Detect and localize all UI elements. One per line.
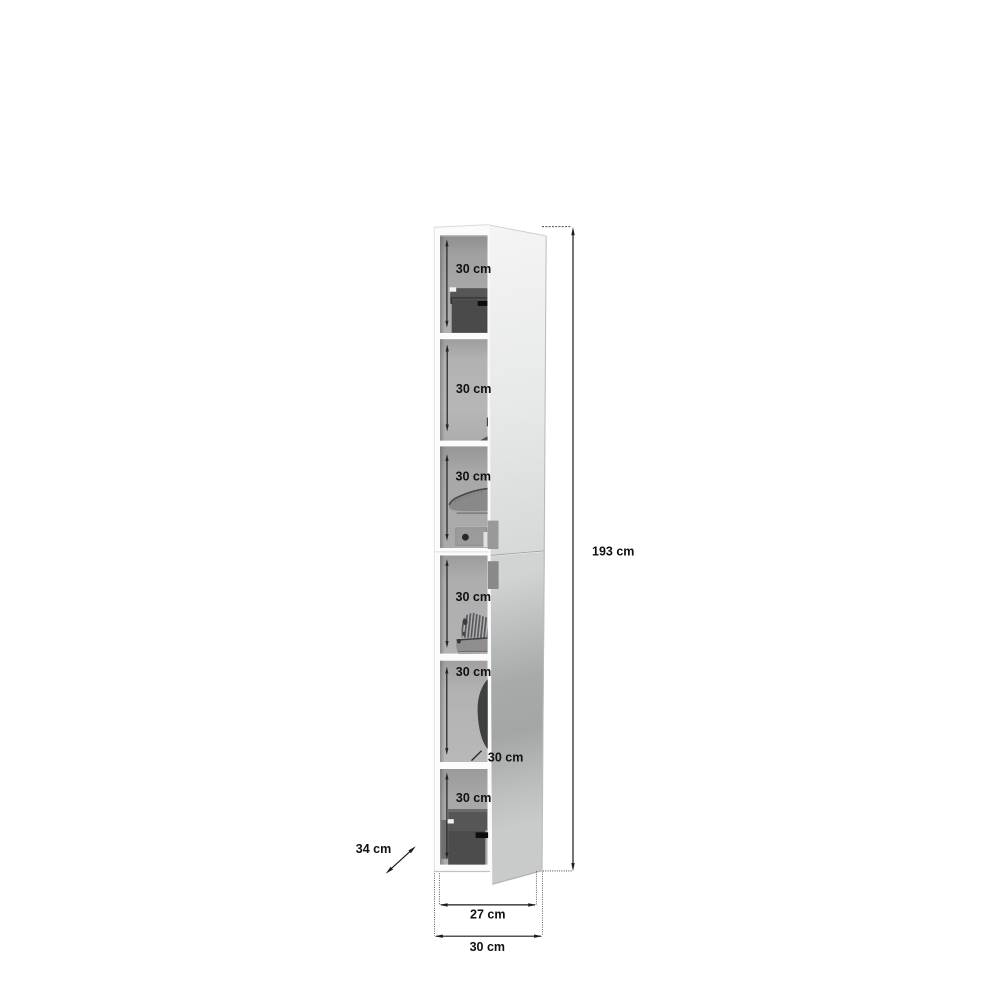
svg-text:193 cm: 193 cm [592,545,634,559]
svg-text:30 cm: 30 cm [488,750,523,764]
svg-text:30 cm: 30 cm [456,470,491,484]
svg-text:30 cm: 30 cm [456,791,491,805]
svg-text:30 cm: 30 cm [456,665,491,679]
svg-text:30 cm: 30 cm [470,940,505,954]
svg-text:30 cm: 30 cm [456,590,491,604]
svg-text:30 cm: 30 cm [456,262,491,276]
svg-text:34 cm: 34 cm [356,842,391,856]
svg-text:30 cm: 30 cm [456,382,491,396]
svg-text:27 cm: 27 cm [470,907,505,921]
